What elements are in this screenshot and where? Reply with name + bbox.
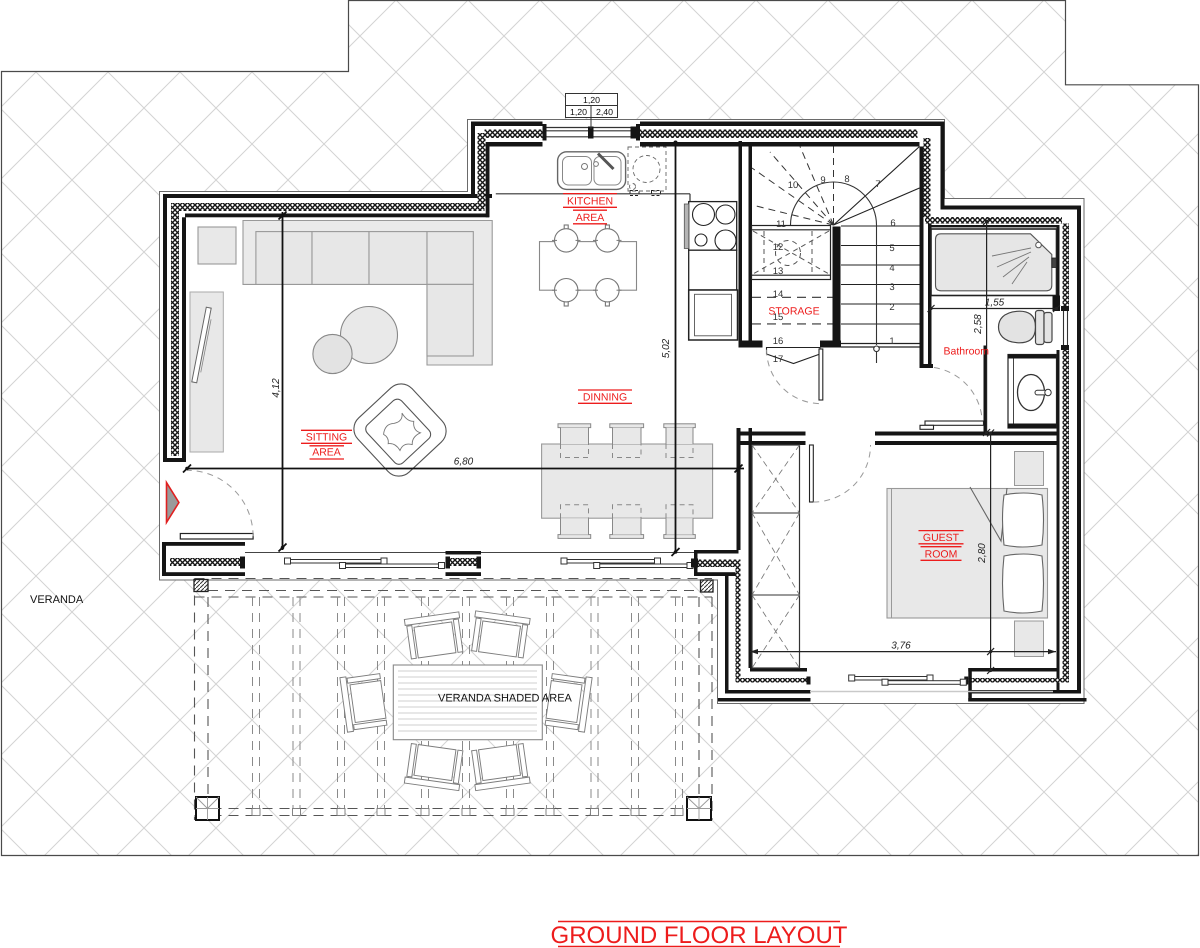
svg-text:4,12: 4,12 — [271, 378, 282, 398]
svg-text:6,80: 6,80 — [454, 457, 474, 468]
svg-text:9: 9 — [820, 175, 825, 186]
svg-text:DINNING: DINNING — [583, 392, 627, 404]
svg-text:1: 1 — [889, 336, 894, 347]
svg-text:3: 3 — [889, 282, 894, 293]
svg-text:7: 7 — [875, 179, 880, 190]
svg-text:KITCHEN: KITCHEN — [567, 196, 613, 208]
svg-text:2,40: 2,40 — [596, 107, 613, 117]
svg-text:3,76: 3,76 — [891, 641, 911, 652]
svg-text:Bathroom: Bathroom — [944, 346, 990, 358]
svg-text:10: 10 — [788, 180, 799, 191]
svg-text:12: 12 — [773, 242, 784, 253]
svg-text:1,20: 1,20 — [583, 95, 600, 105]
svg-text:11: 11 — [776, 219, 786, 230]
svg-text:5: 5 — [889, 243, 894, 254]
svg-text:16: 16 — [773, 336, 784, 347]
svg-text:14: 14 — [773, 289, 784, 300]
svg-text:8: 8 — [844, 174, 849, 185]
svg-text:2: 2 — [889, 302, 894, 313]
svg-text:VERANDA SHADED AREA: VERANDA SHADED AREA — [438, 693, 573, 705]
svg-text:STORAGE: STORAGE — [768, 306, 819, 318]
svg-text:13: 13 — [773, 266, 784, 277]
svg-text:1,55: 1,55 — [985, 298, 1005, 309]
svg-text:5,02: 5,02 — [661, 338, 672, 358]
svg-text:VERANDA: VERANDA — [30, 594, 84, 606]
svg-text:AREA: AREA — [576, 212, 605, 224]
svg-text:1,20: 1,20 — [570, 107, 587, 117]
svg-text:4: 4 — [889, 263, 894, 274]
svg-text:6: 6 — [890, 218, 895, 229]
svg-text:SITTING: SITTING — [306, 432, 347, 444]
svg-text:ROOM: ROOM — [925, 549, 958, 561]
svg-text:2,80: 2,80 — [977, 543, 988, 564]
svg-text:17: 17 — [773, 354, 784, 365]
svg-text:AREA: AREA — [312, 447, 341, 459]
svg-text:GROUND FLOOR LAYOUT: GROUND FLOOR LAYOUT — [551, 922, 848, 948]
svg-text:GUEST: GUEST — [923, 532, 960, 544]
svg-text:2,58: 2,58 — [973, 314, 984, 335]
